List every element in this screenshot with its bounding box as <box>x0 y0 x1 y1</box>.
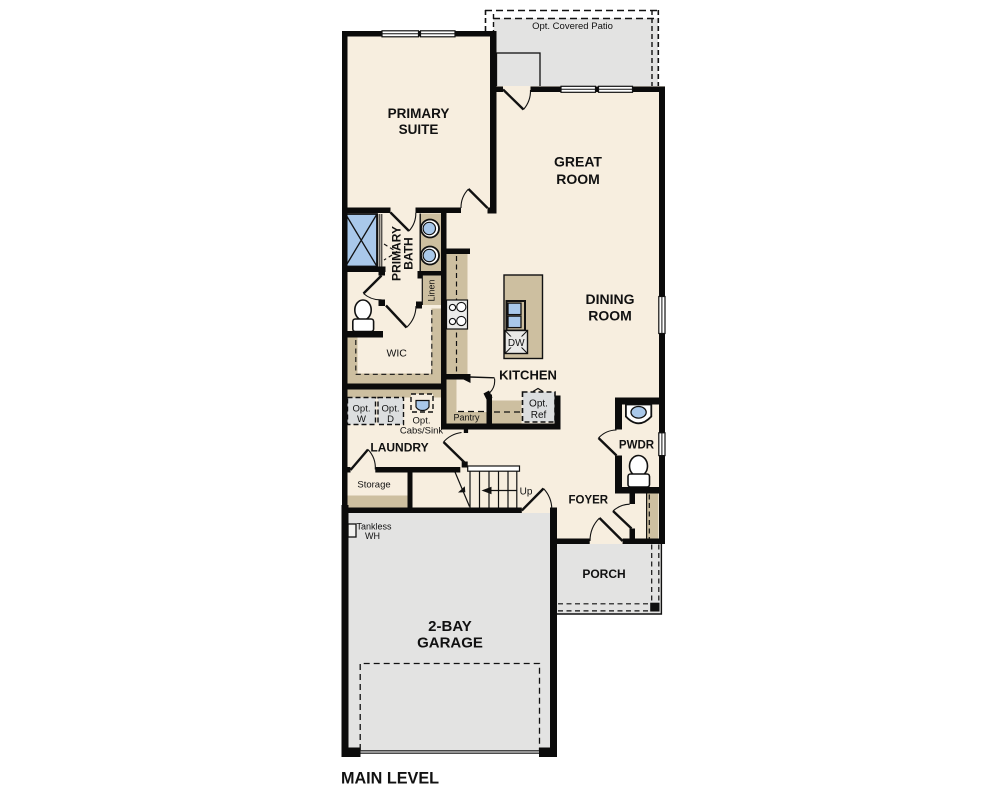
svg-text:Opt.: Opt. <box>353 404 371 415</box>
svg-text:Tankless: Tankless <box>356 522 392 532</box>
svg-text:Opt. Covered Patio: Opt. Covered Patio <box>532 21 613 32</box>
svg-text:2-BAY: 2-BAY <box>428 618 472 635</box>
svg-text:ROOM: ROOM <box>588 308 632 324</box>
svg-text:Opt.: Opt. <box>382 404 400 415</box>
svg-text:W: W <box>357 414 366 425</box>
svg-text:PORCH: PORCH <box>582 567 625 581</box>
svg-text:PWDR: PWDR <box>619 440 655 452</box>
svg-text:BATH: BATH <box>402 237 416 269</box>
svg-text:Linen: Linen <box>427 279 437 301</box>
svg-text:Storage: Storage <box>357 480 390 491</box>
svg-text:Up: Up <box>520 487 533 498</box>
svg-text:DINING: DINING <box>586 291 635 307</box>
svg-text:WIC: WIC <box>386 348 407 360</box>
svg-text:DW: DW <box>508 338 525 349</box>
svg-text:Pantry: Pantry <box>453 413 480 423</box>
svg-text:MAIN LEVEL: MAIN LEVEL <box>341 770 439 788</box>
svg-text:Opt.: Opt. <box>529 399 548 410</box>
svg-text:LAUNDRY: LAUNDRY <box>370 441 428 455</box>
svg-text:ROOM: ROOM <box>556 171 600 187</box>
svg-text:GARAGE: GARAGE <box>417 635 483 652</box>
svg-text:KITCHEN: KITCHEN <box>499 368 557 383</box>
svg-text:WH: WH <box>365 531 380 541</box>
svg-text:SUITE: SUITE <box>399 122 439 137</box>
svg-text:Cabs/Sink: Cabs/Sink <box>400 426 444 437</box>
svg-text:GREAT: GREAT <box>554 154 602 170</box>
svg-text:D: D <box>387 414 394 425</box>
svg-text:PRIMARY: PRIMARY <box>388 106 450 121</box>
svg-text:FOYER: FOYER <box>568 495 608 507</box>
svg-text:Ref: Ref <box>531 410 547 421</box>
